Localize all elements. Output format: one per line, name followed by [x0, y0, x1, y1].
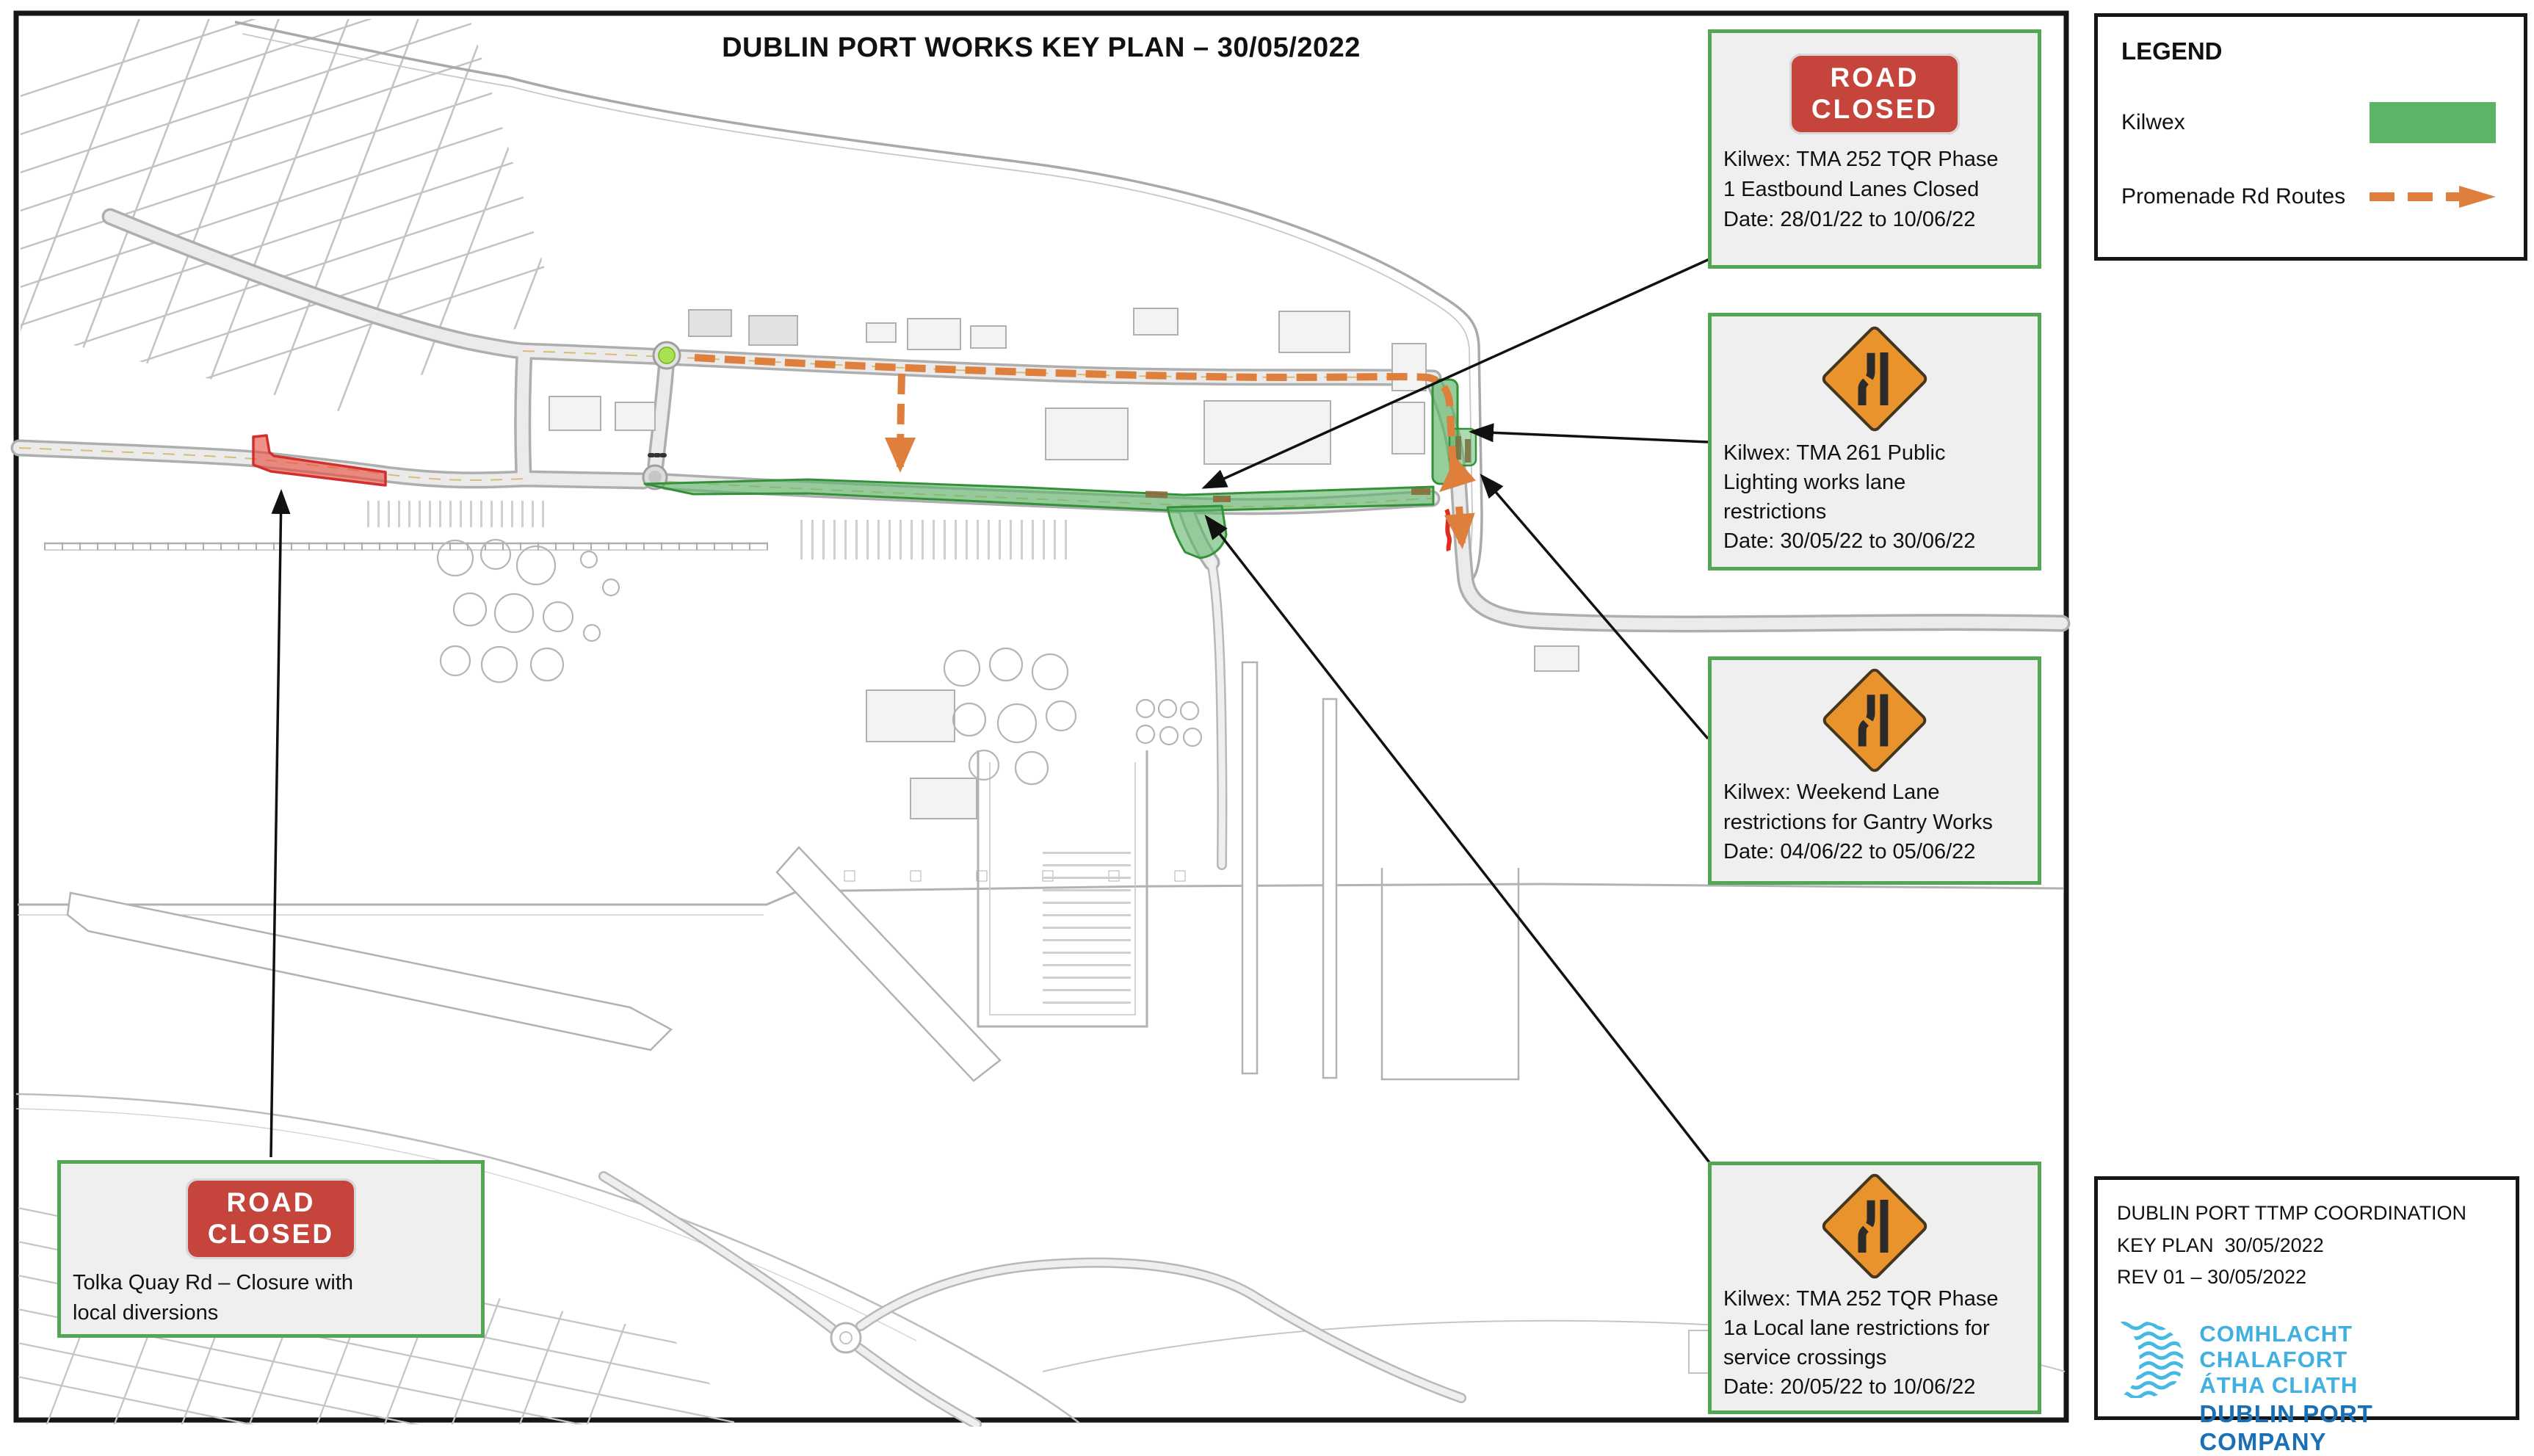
title-block-line2: KEY PLAN 30/05/2022: [2117, 1230, 2497, 1262]
red-works-mark: [1447, 510, 1449, 551]
legend: LEGEND Kilwex Promenade Rd Routes: [2094, 13, 2527, 261]
roundabout-promenade: [654, 342, 680, 369]
roundabout-green-island: [659, 347, 675, 363]
lane-merge-sign-icon: [1820, 666, 1929, 775]
callout-tma252-phase1-text: Kilwex: TMA 252 TQR Phase 1 Eastbound La…: [1712, 134, 2038, 236]
dublin-port-wave-logo-icon: [2117, 1319, 2187, 1401]
quay-finger: [1323, 699, 1336, 1078]
legend-kilwex-label: Kilwex: [2121, 110, 2185, 135]
legend-heading: LEGEND: [2121, 37, 2500, 65]
dublin-port-logo: COMHLACHT CHALAFORT ÁTHA CLIATH DUBLIN P…: [2117, 1319, 2497, 1456]
route-west-branch-arrow: [900, 374, 902, 467]
logo-text-english: DUBLIN PORT COMPANY: [2199, 1400, 2497, 1456]
callout-gantry-weekend-text: Kilwex: Weekend Lane restrictions for Ga…: [1712, 775, 2038, 867]
lane-merge-sign-icon: [1820, 324, 1930, 434]
callout-tma252-phase1a-text: Kilwex: TMA 252 TQR Phase 1a Local lane …: [1712, 1281, 2038, 1402]
callout-tma261: Kilwex: TMA 261 Public Lighting works la…: [1708, 313, 2041, 571]
lane-merge-sign-icon: [1820, 1171, 1930, 1281]
road-closed-sign-icon: ROAD CLOSED: [186, 1178, 356, 1259]
title-block-line3: REV 01 – 30/05/2022: [2117, 1261, 2497, 1294]
title-block: DUBLIN PORT TTMP COORDINATION KEY PLAN 3…: [2094, 1176, 2519, 1420]
quay-finger: [1242, 662, 1257, 1073]
legend-promenade-label: Promenade Rd Routes: [2121, 184, 2345, 209]
dublin-port-key-plan-page: { "title": "DUBLIN PORT WORKS KEY PLAN –…: [0, 0, 2534, 1427]
road-closed-sign-icon: ROAD CLOSED: [1789, 54, 1960, 134]
title-block-line1: DUBLIN PORT TTMP COORDINATION: [2117, 1198, 2497, 1230]
callout-gantry-weekend: Kilwex: Weekend Lane restrictions for Ga…: [1708, 656, 2041, 885]
callout-tma252-phase1: ROAD CLOSED Kilwex: TMA 252 TQR Phase 1 …: [1708, 29, 2041, 269]
callout-tma252-phase1a: Kilwex: TMA 252 TQR Phase 1a Local lane …: [1708, 1162, 2041, 1414]
callout-tma261-text: Kilwex: TMA 261 Public Lighting works la…: [1712, 434, 2038, 556]
promenade-route-arrow-icon: [2367, 184, 2500, 209]
roundabout-southeast: [831, 1323, 861, 1352]
kilwex-swatch: [2370, 102, 2496, 143]
callout-tolka-quay-text: Tolka Quay Rd – Closure with local diver…: [61, 1259, 481, 1328]
route-south-arrow: [1459, 507, 1462, 543]
callout-tolka-quay: ROAD CLOSED Tolka Quay Rd – Closure with…: [57, 1160, 485, 1338]
logo-text-irish-2: ÁTHA CLIATH: [2199, 1373, 2497, 1399]
logo-text-irish-1: COMHLACHT CHALAFORT: [2199, 1322, 2497, 1372]
